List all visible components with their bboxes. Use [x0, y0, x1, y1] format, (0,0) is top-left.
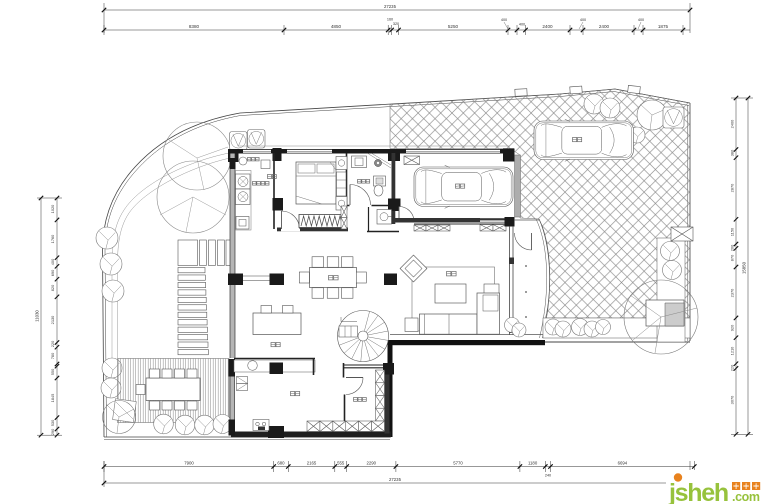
- svg-text:2370: 2370: [730, 288, 735, 297]
- svg-text:780: 780: [50, 352, 55, 359]
- svg-text:220: 220: [730, 364, 735, 371]
- svg-text:550: 550: [50, 368, 55, 375]
- svg-text:2400: 2400: [730, 119, 735, 128]
- svg-text:1760: 1760: [50, 234, 55, 243]
- svg-text:555: 555: [337, 461, 345, 466]
- svg-text:380: 380: [730, 149, 735, 156]
- svg-text:15850: 15850: [742, 261, 747, 274]
- svg-text:920: 920: [730, 324, 735, 331]
- svg-text:27235: 27235: [384, 4, 397, 9]
- svg-text:2290: 2290: [367, 461, 377, 466]
- svg-text:690: 690: [50, 269, 55, 276]
- svg-text:320: 320: [393, 22, 399, 26]
- svg-text:290: 290: [50, 428, 55, 435]
- svg-text:1210: 1210: [730, 346, 735, 355]
- svg-text:1020: 1020: [50, 204, 55, 213]
- svg-text:400: 400: [519, 23, 525, 27]
- svg-text:160: 160: [387, 18, 393, 22]
- svg-text:5770: 5770: [453, 461, 463, 466]
- svg-text:.com: .com: [732, 490, 760, 504]
- svg-text:200: 200: [730, 244, 735, 251]
- svg-text:400: 400: [580, 18, 586, 22]
- svg-text:6694: 6694: [618, 461, 628, 466]
- svg-text:jsheh: jsheh: [668, 479, 728, 504]
- svg-text:5250: 5250: [448, 24, 459, 29]
- svg-text:240: 240: [545, 474, 551, 478]
- svg-text:1875: 1875: [658, 24, 669, 29]
- svg-text:2130: 2130: [50, 315, 55, 324]
- svg-text:400: 400: [638, 18, 644, 22]
- svg-text:4850: 4850: [331, 24, 342, 29]
- svg-text:220: 220: [50, 340, 55, 347]
- svg-text:11030: 11030: [35, 310, 40, 322]
- svg-text:2400: 2400: [542, 24, 553, 29]
- svg-text:7900: 7900: [184, 461, 194, 466]
- svg-text:1150: 1150: [730, 227, 735, 236]
- svg-text:1180: 1180: [528, 461, 538, 466]
- svg-text:8380: 8380: [189, 24, 200, 29]
- svg-text:680: 680: [277, 461, 285, 466]
- svg-text:820: 820: [50, 284, 55, 291]
- svg-text:1845: 1845: [50, 394, 55, 403]
- svg-text:3070: 3070: [730, 395, 735, 404]
- svg-text:400: 400: [50, 258, 55, 265]
- svg-text:530: 530: [50, 419, 55, 426]
- svg-text:27235: 27235: [389, 477, 402, 482]
- svg-text:870: 870: [730, 254, 735, 261]
- svg-text:2400: 2400: [599, 24, 610, 29]
- svg-text:2165: 2165: [307, 461, 317, 466]
- svg-text:2870: 2870: [730, 183, 735, 192]
- svg-text:400: 400: [501, 18, 507, 22]
